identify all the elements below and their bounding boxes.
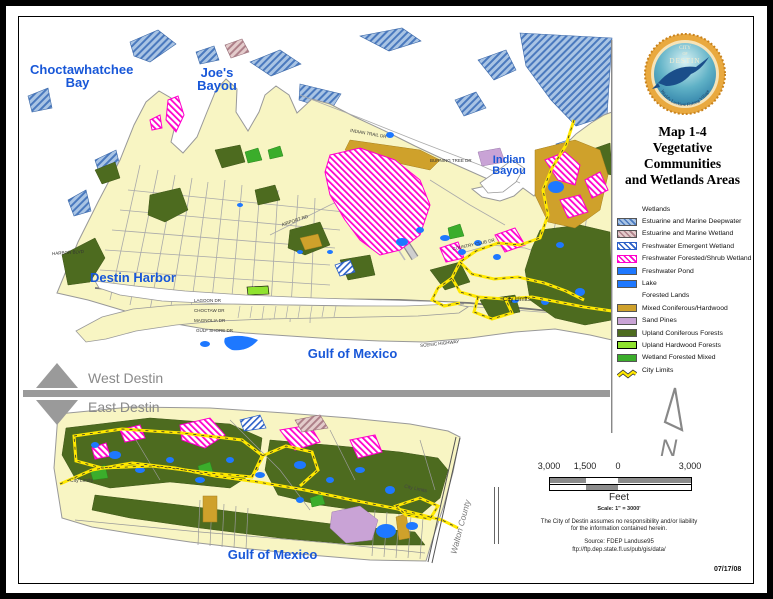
legend-header-wetlands: Wetlands bbox=[617, 203, 753, 215]
scale-note: Scale: 1" = 3000' bbox=[597, 506, 640, 512]
label-destin-harbor: Destin Harbor bbox=[88, 271, 178, 284]
legend-item-mixed-coniferous: Mixed Coniferous/Hardwood bbox=[617, 302, 753, 314]
legend-swatch bbox=[617, 341, 637, 349]
legend-item-upland-coniferous: Upland Coniferous Forests bbox=[617, 327, 753, 339]
north-letter: N bbox=[660, 435, 678, 462]
legend-item-sand-pines: Sand Pines bbox=[617, 315, 753, 327]
seal-graphic: CITY OF DESTIN World's Luckiest Fishing … bbox=[644, 33, 726, 115]
legend-item-wetland-forested-mixed: Wetland Forested Mixed bbox=[617, 352, 753, 364]
legend-item-lake: Lake bbox=[617, 277, 753, 289]
street-label: BURNING TREE DR bbox=[430, 158, 472, 163]
label-city-limits-main: City Limits bbox=[503, 297, 531, 303]
seal-destin-text: DESTIN bbox=[670, 57, 701, 65]
legend-item-upland-hardwood: Upland Hardwood Forests bbox=[617, 339, 753, 351]
legend-item-estuarine-wetland: Estuarine and Marine Wetland bbox=[617, 228, 753, 240]
seal-of-text: OF bbox=[682, 51, 688, 56]
source-note: Source: FDEP Landuse95 ftp://ftp.dep.sta… bbox=[509, 538, 729, 554]
label-choctawhatchee-bay: Choctawhatchee Bay bbox=[30, 63, 125, 89]
west-east-divider-bar bbox=[23, 390, 610, 397]
street-label: GULF SHORE DR bbox=[196, 328, 233, 333]
map-title: Map 1-4 Vegetative Communities and Wetla… bbox=[612, 124, 753, 188]
legend-swatch bbox=[617, 267, 637, 275]
legend-swatch bbox=[617, 280, 637, 288]
legend-header-forested-lands: Forested Lands bbox=[617, 290, 753, 302]
scale-tick: 1,500 bbox=[574, 461, 597, 471]
legend-item-freshwater-emergent: Freshwater Emergent Wetland bbox=[617, 240, 753, 252]
street-label: MAGNOLIA DR bbox=[194, 318, 225, 323]
legend-swatch bbox=[617, 329, 637, 337]
legend-swatch bbox=[617, 242, 637, 250]
scale-unit: Feet bbox=[609, 492, 629, 503]
legend-item-freshwater-shrub: Freshwater Forested/Shrub Wetland bbox=[617, 253, 753, 265]
map-title-line: Map 1-4 bbox=[612, 124, 753, 140]
west-arrow-icon bbox=[36, 363, 78, 388]
label-city-limits-bottom-1: City Limits bbox=[70, 478, 93, 484]
scale-tick: 3,000 bbox=[538, 461, 561, 471]
legend-swatch bbox=[617, 255, 637, 263]
scale-tick: 3,000 bbox=[679, 461, 702, 471]
county-line-fragment bbox=[494, 487, 499, 544]
legend-item-estuarine-deepwater: Estuarine and Marine Deepwater bbox=[617, 215, 753, 227]
map-title-line: Communities bbox=[612, 156, 753, 172]
scale-tick: 0 bbox=[615, 461, 620, 471]
legend-swatch bbox=[617, 354, 637, 362]
label-gulf-of-mexico-main: Gulf of Mexico bbox=[305, 347, 400, 360]
legend-item-freshwater-pond: Freshwater Pond bbox=[617, 265, 753, 277]
disclaimer: The City of Destin assumes no responsibi… bbox=[509, 519, 729, 533]
legend-swatch bbox=[617, 218, 637, 226]
legend-swatch bbox=[617, 304, 637, 312]
legend: Wetlands Estuarine and Marine Deepwater … bbox=[617, 203, 753, 376]
label-joes-bayou: Joe's Bayou bbox=[196, 66, 238, 92]
label-east-destin: East Destin bbox=[88, 399, 160, 415]
north-arrow-icon: N bbox=[648, 384, 698, 467]
legend-swatch bbox=[617, 317, 637, 325]
scale-bar-graphic bbox=[549, 477, 692, 491]
map-date: 07/17/08 bbox=[714, 566, 741, 573]
legend-swatch bbox=[617, 230, 637, 238]
label-indian-bayou: Indian Bayou bbox=[486, 155, 532, 177]
east-arrow-icon bbox=[36, 400, 78, 425]
street-label: CHOCTAW DR bbox=[194, 308, 225, 313]
map-title-line: and Wetlands Areas bbox=[612, 172, 753, 188]
label-west-destin: West Destin bbox=[88, 370, 163, 386]
city-of-destin-seal: CITY OF DESTIN World's Luckiest Fishing … bbox=[644, 33, 726, 120]
street-label: LAGOON DR bbox=[194, 298, 221, 303]
panel-separator bbox=[611, 40, 612, 433]
map-page: Choctawhatchee Bay Joe's Bayou Indian Ba… bbox=[0, 0, 773, 599]
map-title-line: Vegetative bbox=[612, 140, 753, 156]
legend-swatch bbox=[617, 366, 637, 374]
legend-item-city-limits: City Limits bbox=[617, 364, 753, 376]
label-gulf-of-mexico-bottom: Gulf of Mexico bbox=[225, 548, 320, 561]
